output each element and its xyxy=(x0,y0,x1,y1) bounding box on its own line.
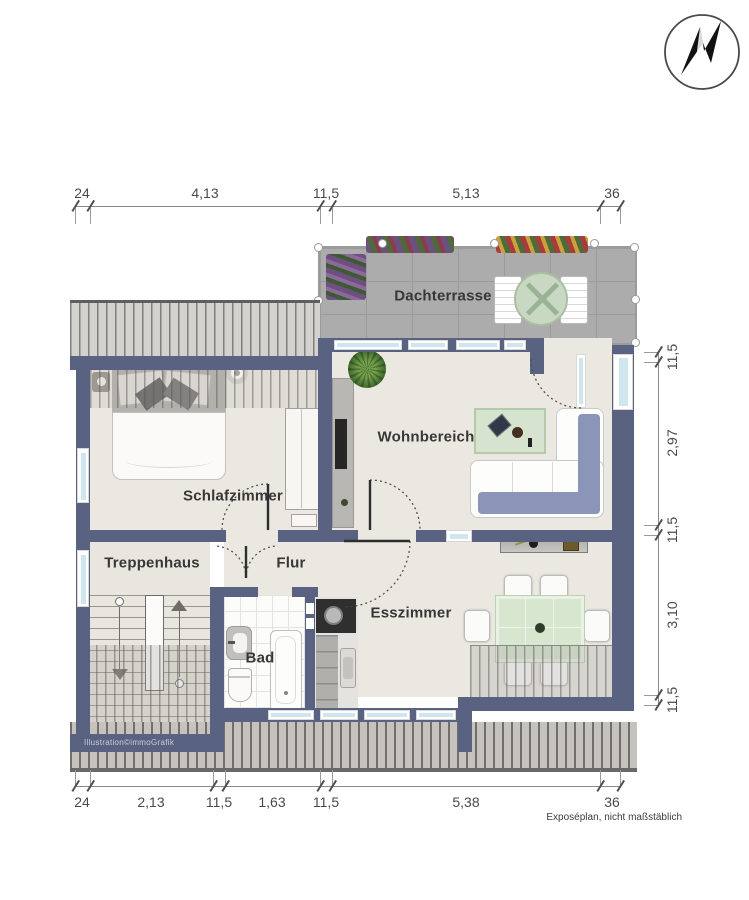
room-label-dachterrasse: Dachterrasse xyxy=(394,288,491,305)
room-label-flur: Flur xyxy=(276,555,305,572)
floorplan-canvas: Dachterrasse Wohnbereich Schlafzimmer Tr… xyxy=(0,0,749,900)
room-label-wohnbereich: Wohnbereich xyxy=(378,429,475,446)
room-label-esszimmer: Esszimmer xyxy=(370,605,451,622)
room-label-bad: Bad xyxy=(246,650,275,667)
room-label-schlafzimmer: Schlafzimmer xyxy=(183,488,283,505)
room-label-treppenhaus: Treppenhaus xyxy=(104,555,200,572)
footer-note: Exposéplan, nicht maßstäblich xyxy=(420,812,682,823)
door-swing-overlay xyxy=(0,0,749,900)
illustration-credit: Illustration©immoGrafik xyxy=(84,738,174,747)
